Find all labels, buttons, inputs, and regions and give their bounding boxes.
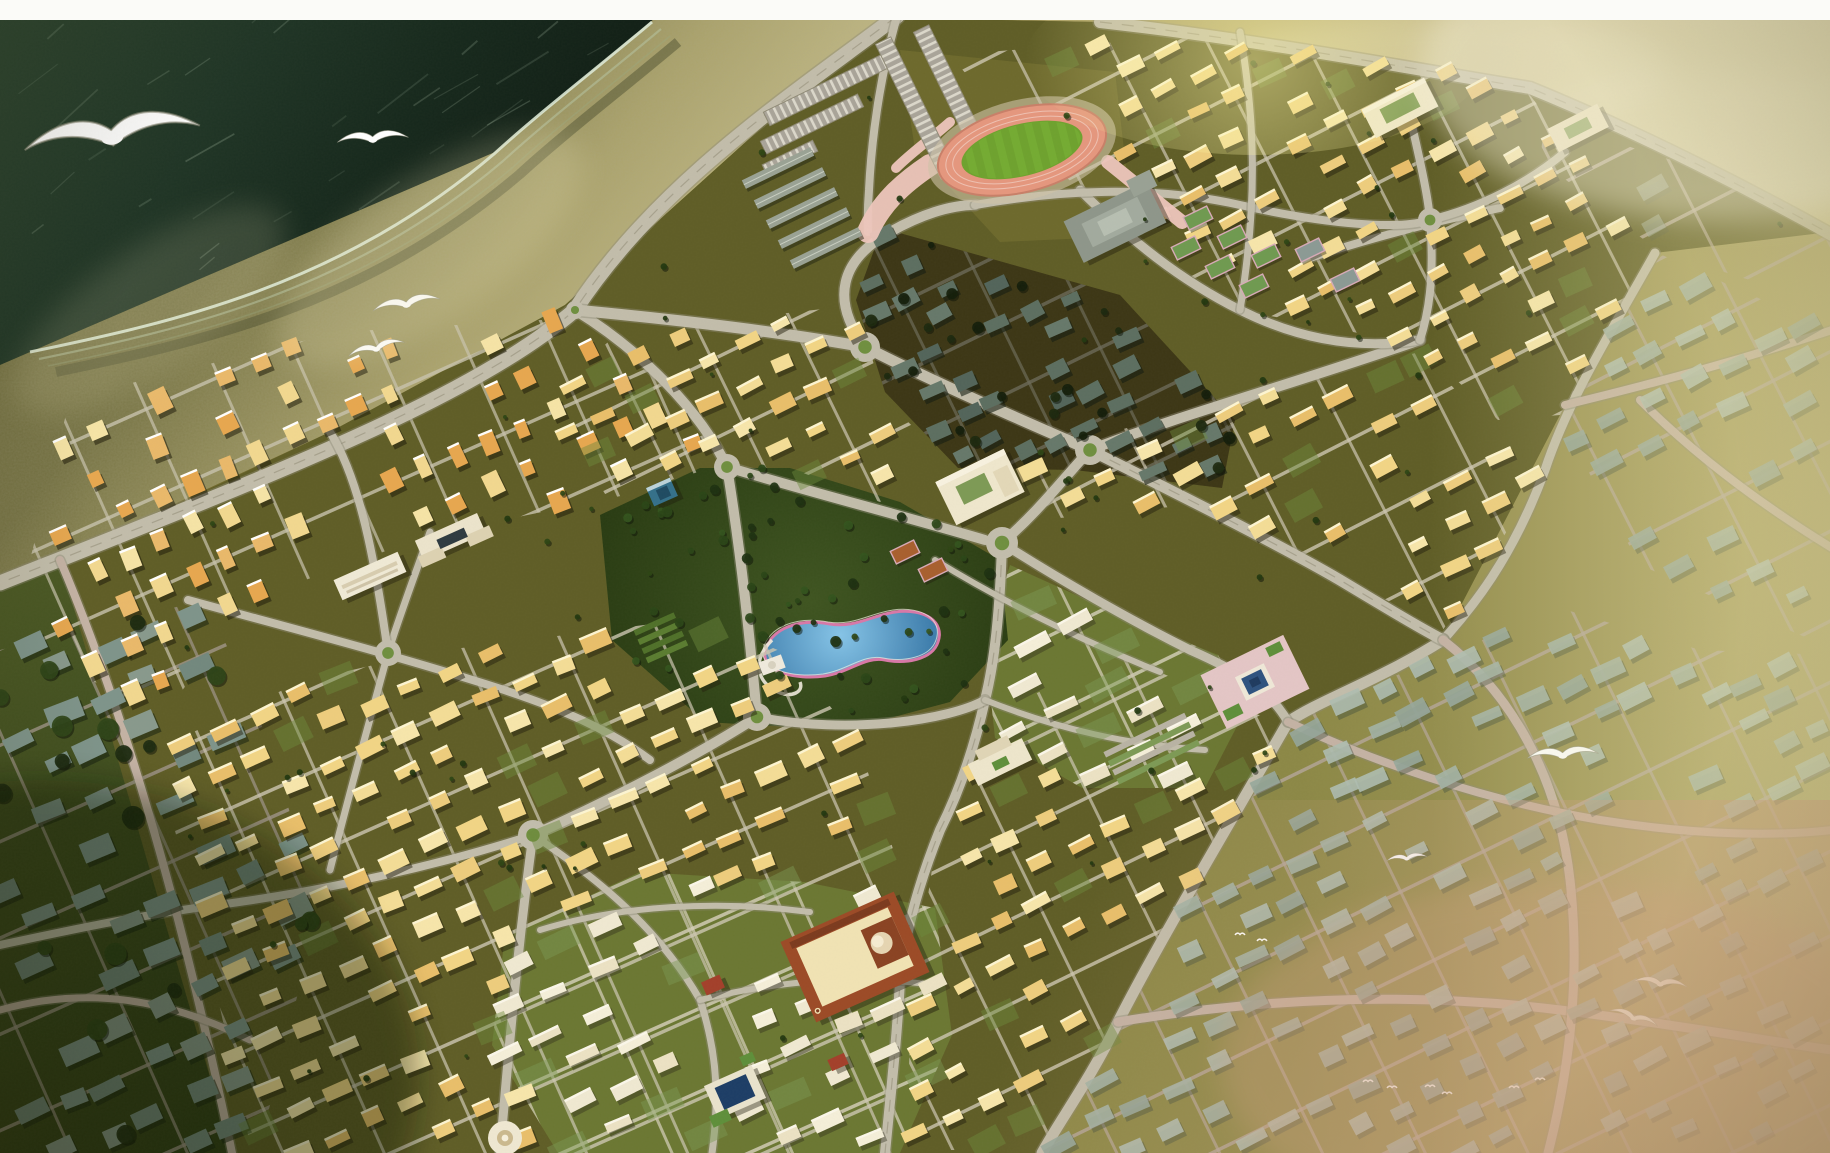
masterplan-rendering [0, 0, 1830, 1153]
frame-border [0, 0, 1830, 20]
atmosphere-haze [0, 0, 1830, 1153]
scene-svg [0, 0, 1830, 1153]
